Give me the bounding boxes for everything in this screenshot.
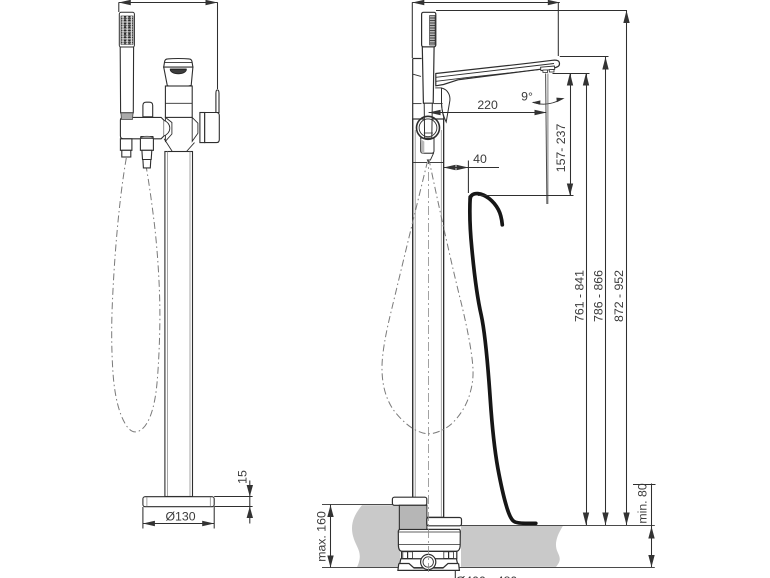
svg-text:761 - 841: 761 - 841 [572,270,586,322]
svg-text:15: 15 [235,470,249,484]
svg-text:220: 220 [477,98,498,112]
svg-text:Ø130: Ø130 [165,510,195,524]
svg-text:Ø400 - 480: Ø400 - 480 [456,574,518,578]
svg-text:40: 40 [473,152,487,166]
svg-text:max. 160: max. 160 [315,511,329,562]
svg-text:157- 237: 157- 237 [554,124,568,173]
svg-text:872 - 952: 872 - 952 [612,270,626,322]
svg-text:786 - 866: 786 - 866 [592,270,606,322]
svg-text:min. 80: min. 80 [635,483,649,523]
svg-text:9°: 9° [521,90,533,104]
